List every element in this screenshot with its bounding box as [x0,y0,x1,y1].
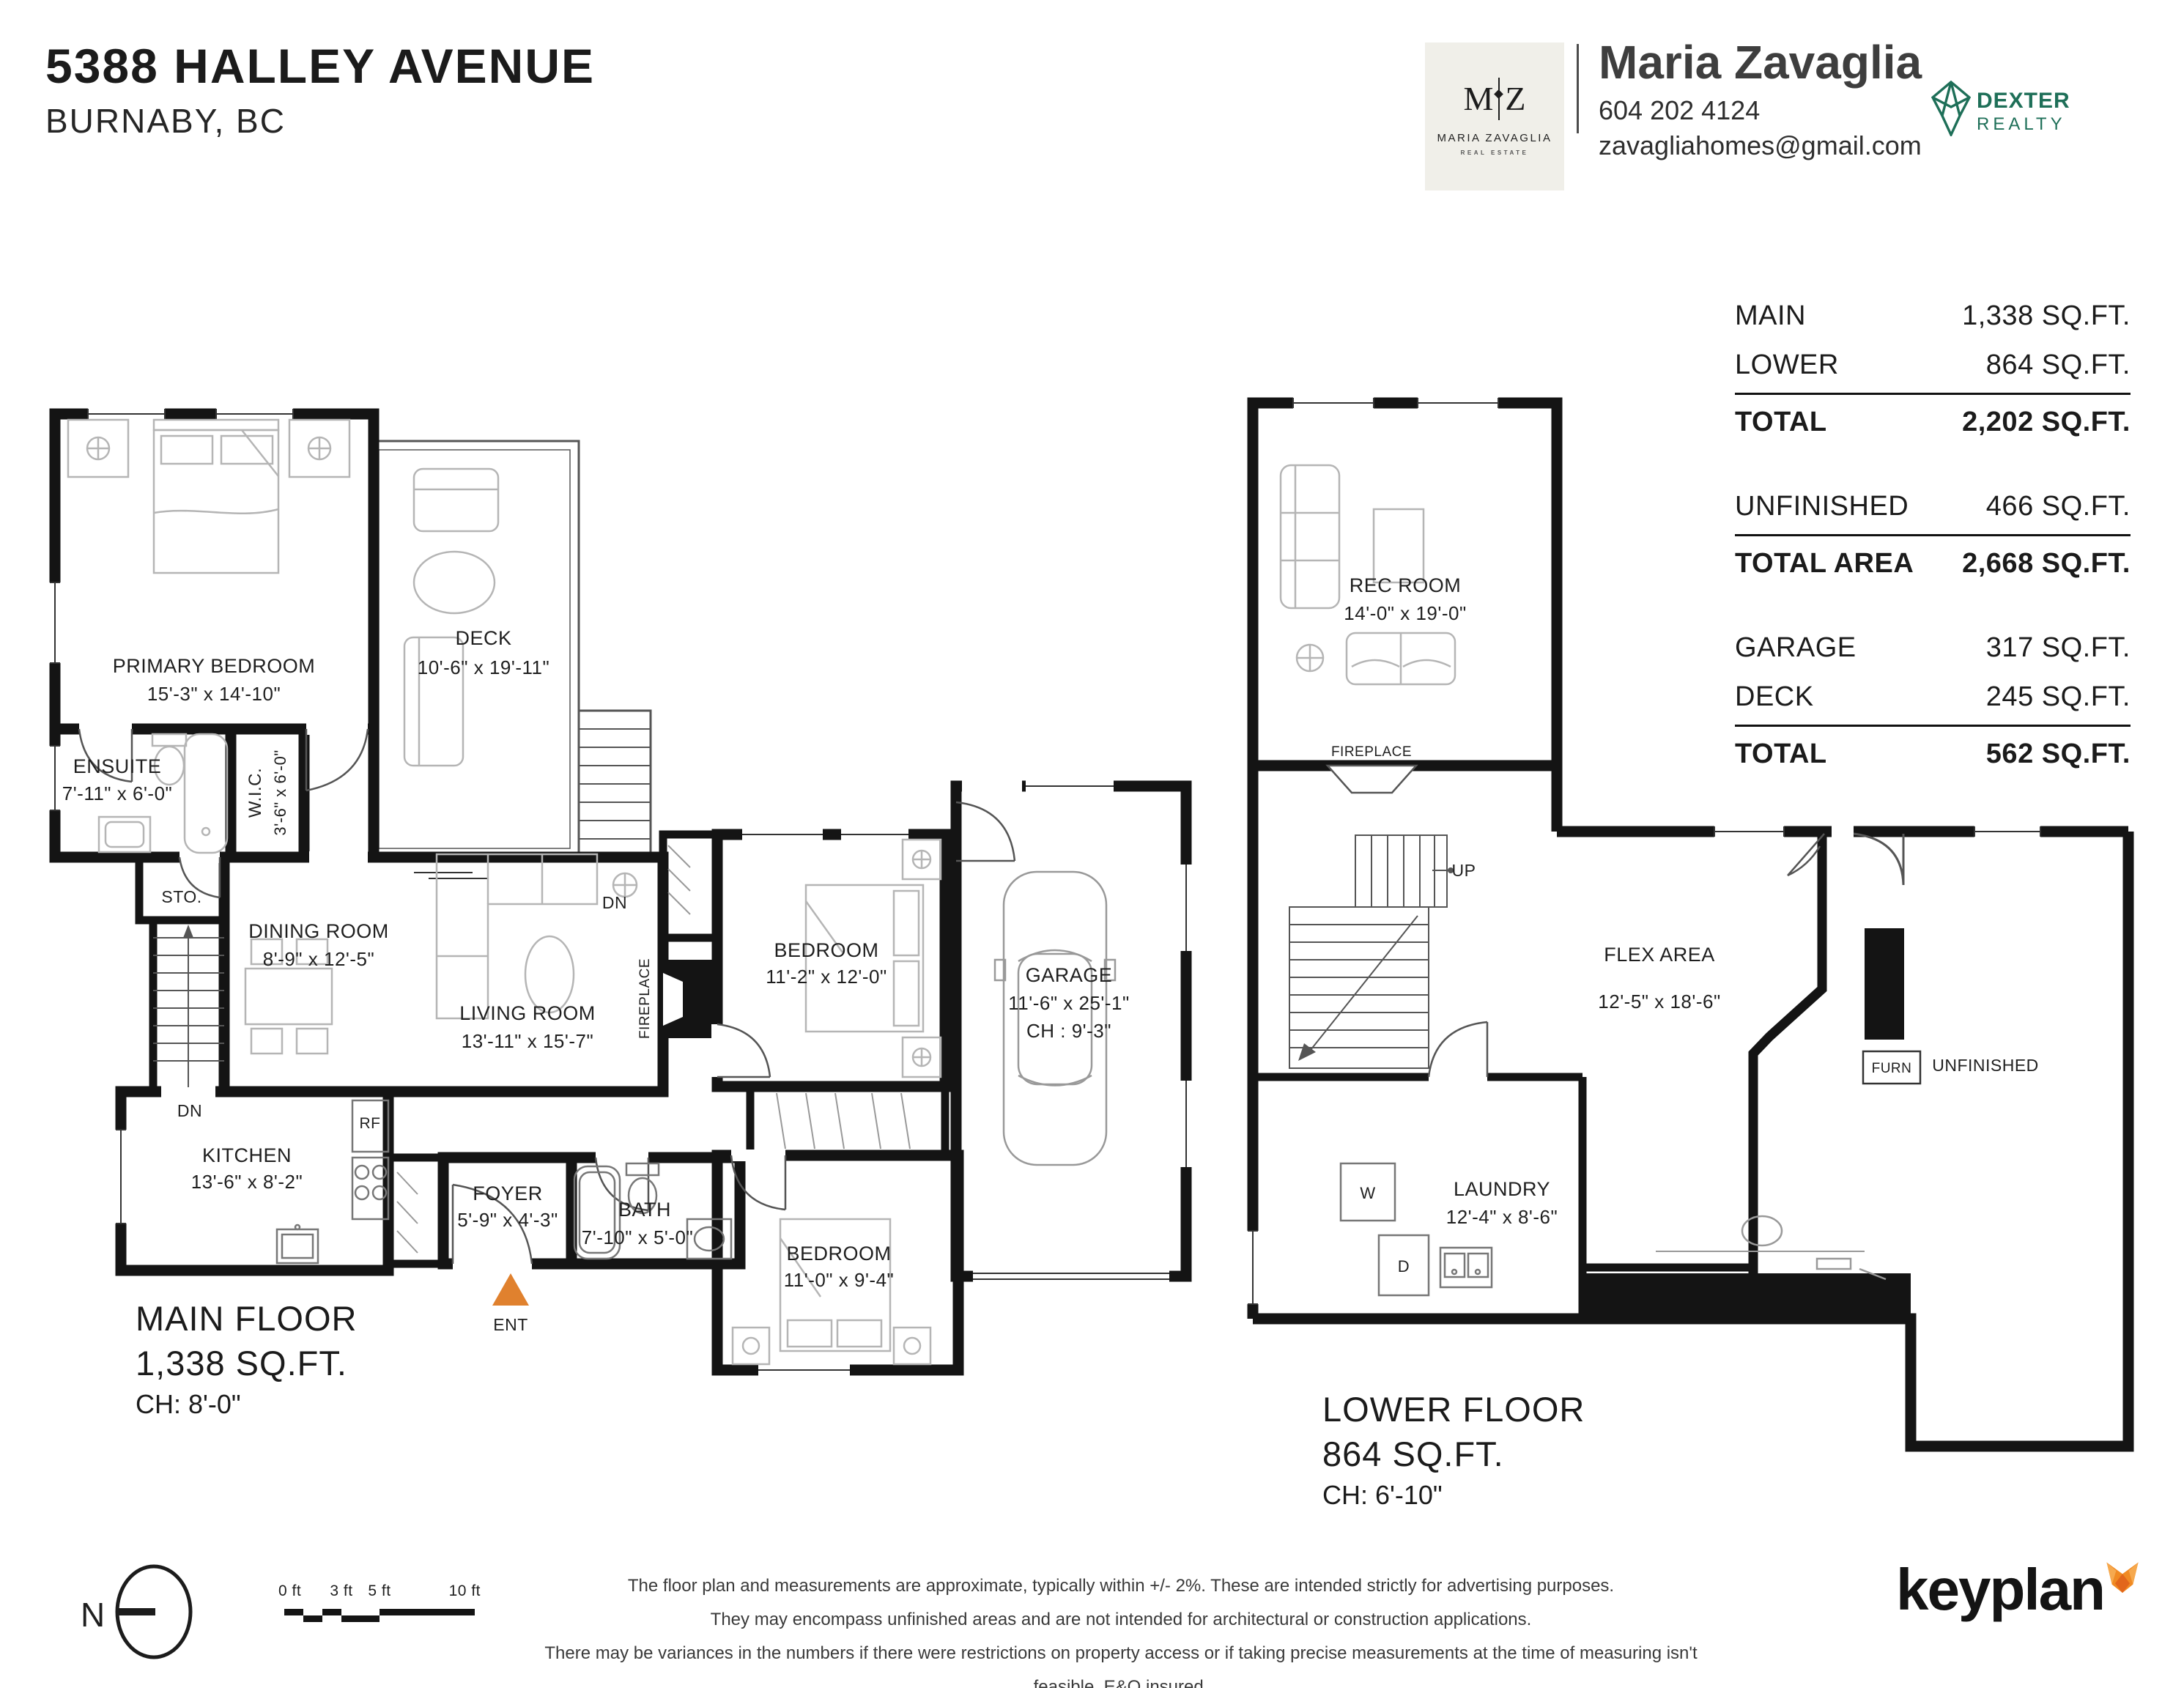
room-dims: 10'-6" x 19'-11" [418,656,549,678]
dryer-label: D [1398,1257,1410,1276]
room-label: GARAGE [1026,964,1113,986]
stairs-down [153,935,224,1087]
property-city: BURNABY, BC [45,101,595,141]
brokerage-logo: DEXTER REALTY [1931,81,2070,136]
car [995,872,1115,1165]
monogram-letter-z: Z [1505,79,1525,118]
room-label: LIVING ROOM [459,1002,596,1024]
room-dims: 7'-11" x 6'-0" [62,782,173,804]
room-dims: 11'-0" x 9'-4" [784,1269,895,1291]
stat-value: 864 SQ.FT. [1986,349,2131,381]
lower-floor-labels: REC ROOM 14'-0" x 19'-0" FIREPLACE UP FL… [1331,574,2039,1276]
foundation-band [1583,1273,1911,1319]
floor-title: LOWER FLOOR [1322,1389,1585,1429]
chimney [1865,928,1904,1040]
room-label: BATH [618,1199,671,1221]
room-label: BEDROOM [786,1243,891,1265]
property-address: 5388 HALLEY AVENUE [45,38,595,94]
fridge-label: RF [360,1115,381,1132]
stat-label: LOWER [1735,349,1839,381]
deck-stairs-label: DN [602,893,627,912]
floorplan-sheet: 5388 HALLEY AVENUE BURNABY, BC M Z MARIA… [0,0,2184,1688]
room-label: REC ROOM [1350,574,1462,596]
room-label: W.I.C. [245,768,265,818]
room-dims: 5'-9" x 4'-3" [457,1209,558,1231]
north-compass-icon: N [51,1561,220,1667]
stairs-label: UP [1452,861,1476,880]
keyplan-brand-text: keyplan [1896,1561,2104,1619]
room-label: FLEX AREA [1604,944,1715,966]
keyplan-logo: keyplan [1896,1561,2139,1619]
stat-row-lower: LOWER 864 SQ.FT. [1735,341,2131,390]
dexter-diamond-icon [1931,81,1971,136]
room-dims: 15'-3" x 14'-10" [147,683,281,705]
fireplace-label: FIREPLACE [637,958,653,1039]
room-dims: 12'-4" x 8'-6" [1446,1206,1558,1228]
room-dims: 13'-11" x 15'-7" [462,1030,593,1052]
stairs-label: DN [177,1101,202,1120]
room-label: DECK [455,627,511,649]
scale-tick: 10 ft [449,1582,481,1599]
wall-openings [1247,397,2040,1304]
fireplace [663,960,717,1038]
entry-arrow-icon [492,1273,529,1306]
room-dims: 11'-6" x 25'-1" [1008,992,1129,1014]
room-dims: 13'-6" x 8'-2" [191,1171,303,1193]
room-label: DINING ROOM [248,920,389,942]
fox-icon [2106,1562,2139,1594]
room-dims: 12'-5" x 18'-6" [1598,991,1720,1013]
washer-label: W [1360,1184,1375,1202]
room-dims: 14'-0" x 19'-0" [1344,602,1466,624]
scale-segments [284,1609,475,1622]
entry-label: ENT [493,1315,528,1334]
room-label: KITCHEN [202,1144,292,1166]
lower-floor-title-block: LOWER FLOOR 864 SQ.FT. CH: 6'-10" [1322,1389,1585,1511]
unfinished-label: UNFINISHED [1932,1056,2039,1075]
agent-email[interactable]: zavagliahomes@gmail.com [1599,130,1922,161]
room-label: LAUNDRY [1454,1178,1550,1200]
floor-title: MAIN FLOOR [136,1298,357,1339]
floor-area: 864 SQ.FT. [1322,1434,1585,1474]
property-address-block: 5388 HALLEY AVENUE BURNABY, BC [45,38,595,141]
deck-furniture [404,469,498,766]
disclaimer-line: The floor plan and measurements are appr… [542,1569,1700,1603]
room-label: PRIMARY BEDROOM [113,655,316,677]
stairs-up [1289,835,1453,1068]
room-ceiling: CH : 9'-3" [1026,1020,1111,1042]
scale-tick: 3 ft [330,1582,352,1599]
scale-tick: 0 ft [278,1582,301,1599]
agent-info-block: Maria Zavaglia 604 202 4124 zavagliahome… [1599,35,1922,161]
header-divider [1577,44,1579,133]
room-label: ENSUITE [73,755,162,777]
fireplace [1328,766,1416,793]
disclaimer: The floor plan and measurements are appr… [542,1569,1700,1688]
agent-monogram: M Z [1463,78,1525,120]
north-label: N [81,1596,106,1634]
room-dims: 3'-6" x 6'-0" [271,749,289,835]
brokerage-division: REALTY [1977,116,2070,133]
deck-outline [370,441,651,857]
room-label: FOYER [473,1182,543,1204]
scale-tick: 5 ft [368,1582,390,1599]
stat-row-main: MAIN 1,338 SQ.FT. [1735,292,2131,341]
agent-phone[interactable]: 604 202 4124 [1599,95,1922,126]
brokerage-name: DEXTER [1977,90,2070,112]
logo-card-name: MARIA ZAVAGLIA [1437,132,1552,144]
stat-value: 1,338 SQ.FT. [1962,300,2131,332]
disclaimer-line: They may encompass unfinished areas and … [542,1603,1700,1637]
disclaimer-line: There may be variances in the numbers if… [542,1637,1700,1688]
agent-name: Maria Zavaglia [1599,35,1922,89]
scale-bar: 0 ft 3 ft 5 ft 10 ft [277,1581,489,1638]
main-floor-title-block: MAIN FLOOR 1,338 SQ.FT. CH: 8'-0" [136,1298,357,1420]
room-label: STO. [161,887,201,906]
windows [1248,398,2040,1304]
room-dims: 11'-2" x 12'-0" [766,966,886,988]
room-dims: 7'-10" x 5'-0" [582,1226,693,1248]
floor-ceiling-height: CH: 8'-0" [136,1389,357,1420]
furnace-label: FURN [1872,1061,1912,1076]
stat-label: MAIN [1735,300,1806,332]
logo-card-tagline: REAL ESTATE [1461,149,1529,156]
room-dims: 8'-9" x 12'-5" [263,948,374,970]
lower-floor-plan: REC ROOM 14'-0" x 19'-0" FIREPLACE UP FL… [1245,396,2139,1480]
room-label: BEDROOM [774,939,878,961]
fireplace-label: FIREPLACE [1331,744,1412,760]
monogram-divider [1498,78,1500,120]
floor-area: 1,338 SQ.FT. [136,1343,357,1383]
floor-ceiling-height: CH: 6'-10" [1322,1480,1585,1511]
monogram-letter-m: M [1463,79,1493,118]
stat-rule [1735,393,2131,395]
stairs-arrow [183,925,193,938]
agent-logo-card: M Z MARIA ZAVAGLIA REAL ESTATE [1425,42,1564,190]
